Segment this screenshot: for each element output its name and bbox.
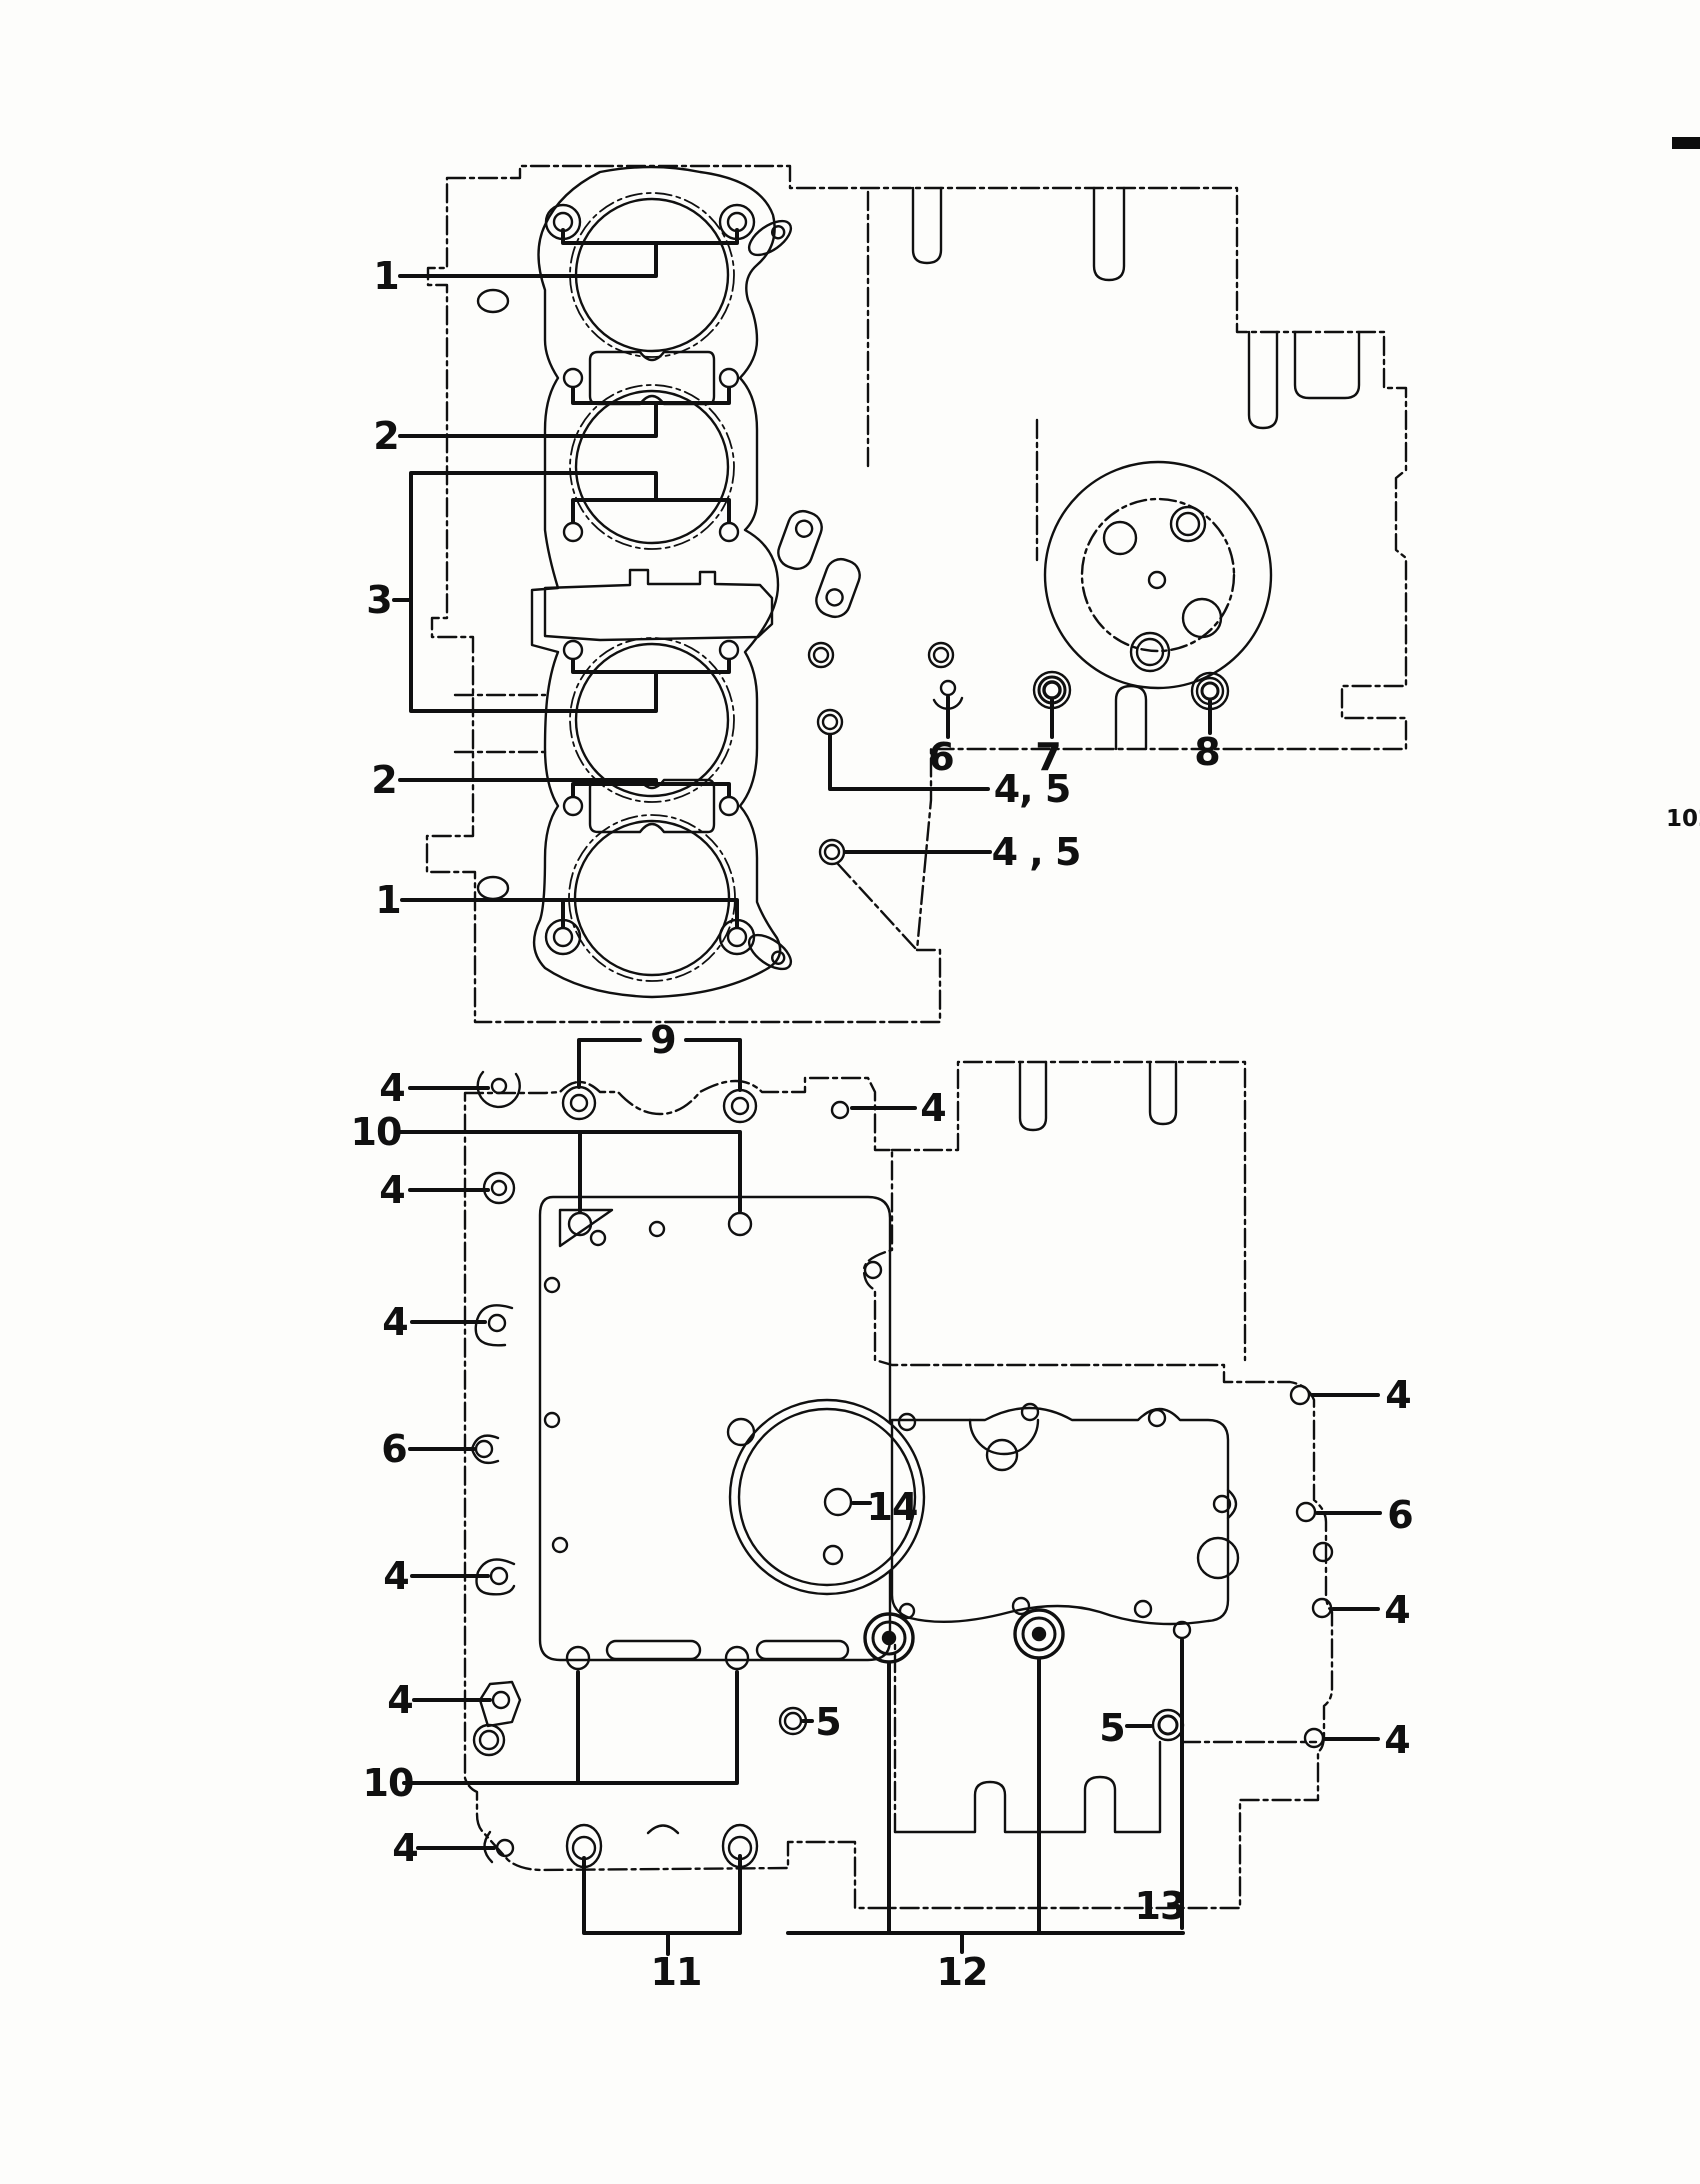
callout-label: 4 xyxy=(379,1069,404,1107)
lower-case-notches xyxy=(1020,1062,1176,1130)
callout-label: 10 xyxy=(363,1764,414,1802)
page-number: 102 xyxy=(1666,806,1700,832)
callout-label: 4 xyxy=(1384,1721,1409,1759)
callout-label: 5 xyxy=(815,1703,840,1741)
callout-label: 13 xyxy=(1135,1887,1186,1925)
right-edge-holes xyxy=(1291,1386,1332,1747)
callout-label: 12 xyxy=(937,1953,988,1991)
right-gasket xyxy=(892,1404,1238,1638)
callout-label: 4 xyxy=(920,1089,945,1127)
callout-label: 4 xyxy=(387,1681,412,1719)
hole-7 xyxy=(1044,682,1060,698)
hole-6-right xyxy=(1297,1503,1315,1521)
hole-4-5-a xyxy=(823,715,837,729)
callout-label: 8 xyxy=(1194,733,1219,771)
callout-label: 5 xyxy=(1099,1709,1124,1747)
case-oval-holes xyxy=(478,290,508,899)
cam-tunnel-cutout xyxy=(545,570,772,640)
callout-label: 2 xyxy=(371,761,396,799)
callout-label: 4 xyxy=(1385,1376,1410,1414)
hole-6 xyxy=(941,681,955,695)
callout-label: 11 xyxy=(651,1953,702,1991)
bowtie-cutouts xyxy=(590,352,714,832)
callout-label: 1 xyxy=(375,881,400,919)
callout-label: 4 , 5 xyxy=(992,833,1081,871)
manual-page: 123216784, 54 , 594410446441041455464413… xyxy=(0,0,1700,2184)
callout-label: 6 xyxy=(1387,1496,1412,1534)
callout-label: 14 xyxy=(867,1488,918,1526)
callout-label: 2 xyxy=(373,417,398,455)
bottom-flange-bosses xyxy=(567,1825,757,1867)
callout-label: 4 xyxy=(1384,1591,1409,1629)
registration-dash-mark xyxy=(1672,137,1700,149)
hole-5-left xyxy=(785,1713,801,1729)
callout-label: 1 xyxy=(373,257,398,295)
callout-label: 4 xyxy=(383,1557,408,1595)
gasket-diagram-artwork xyxy=(0,0,1700,2184)
callout-label: 3 xyxy=(366,581,391,619)
upper-crankcase-outline xyxy=(427,166,1406,1022)
clutch-bearing-circle xyxy=(1045,462,1271,688)
hole-4-5-b xyxy=(825,845,839,859)
callout-label: 9 xyxy=(650,1021,675,1059)
callout-label: 10 xyxy=(351,1113,402,1151)
cylinder-head-gasket xyxy=(532,167,797,997)
callout-label: 4 xyxy=(382,1303,407,1341)
callout-label: 6 xyxy=(928,738,953,776)
top-leader-lines xyxy=(394,230,1210,927)
gasket-bolt-holes xyxy=(546,205,797,976)
callout-label: 4, 5 xyxy=(994,770,1071,808)
hole-6-left xyxy=(476,1441,492,1457)
callout-label: 4 xyxy=(379,1171,404,1209)
upper-flange-bolts xyxy=(563,1087,881,1278)
callout-label: 4 xyxy=(392,1829,417,1867)
hole-8 xyxy=(1202,683,1218,699)
callout-label: 6 xyxy=(381,1430,406,1468)
hole-5-right xyxy=(1159,1716,1177,1734)
stud-pads xyxy=(774,507,864,621)
